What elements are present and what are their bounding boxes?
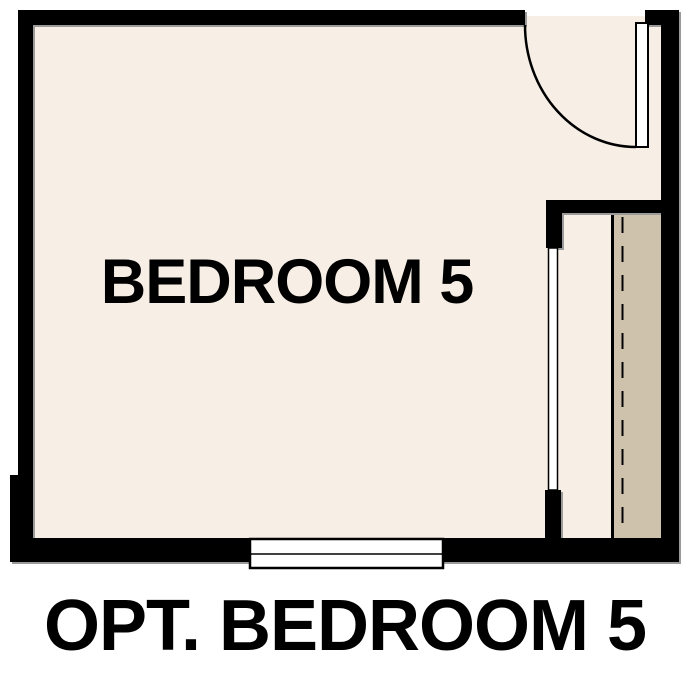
floor-plan-page: BEDROOM 5 OPT. BEDROOM 5 xyxy=(0,0,687,687)
closet-jamb-top xyxy=(546,200,562,248)
room-label: BEDROOM 5 xyxy=(101,247,474,317)
closet-shelf-line xyxy=(611,213,614,538)
closet-floor xyxy=(613,213,661,538)
left-wall xyxy=(18,10,33,475)
door-leaf xyxy=(636,23,648,147)
top-wall xyxy=(18,10,525,25)
floor-plan-drawing: BEDROOM 5 OPT. BEDROOM 5 xyxy=(0,0,687,687)
closet-jamb-bottom xyxy=(545,490,561,540)
closet-opening xyxy=(549,248,558,490)
closet-top-wall xyxy=(547,200,661,213)
right-wall xyxy=(661,10,679,562)
plan-caption: OPT. BEDROOM 5 xyxy=(44,586,646,666)
